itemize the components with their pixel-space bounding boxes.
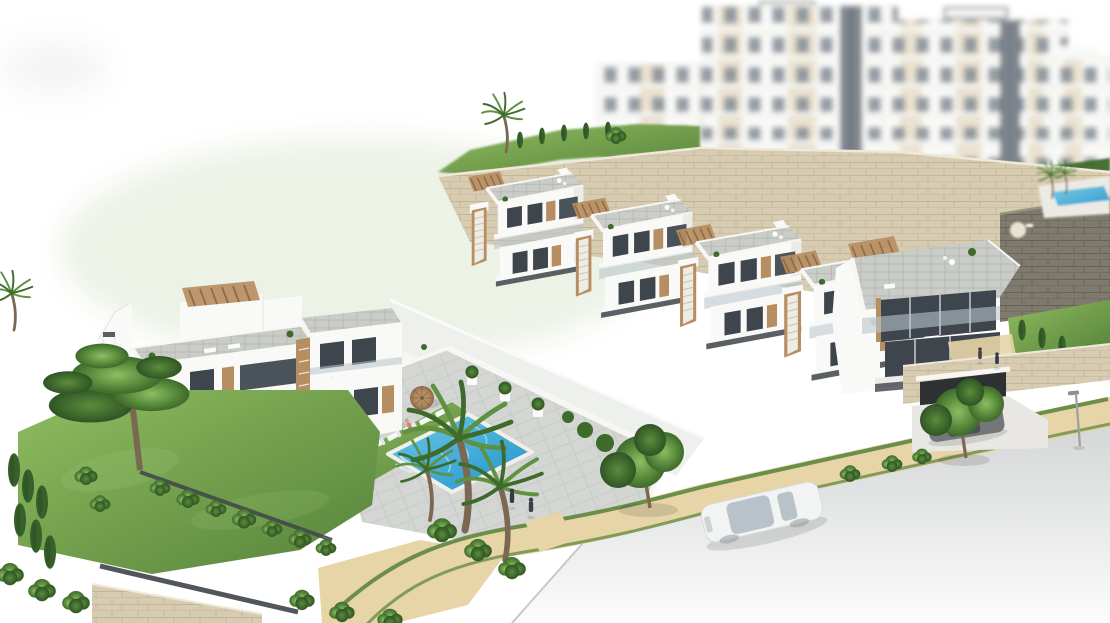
townhouse-unit <box>676 220 801 349</box>
palm-tree <box>0 271 32 330</box>
garden-wall <box>92 584 262 623</box>
architectural-render: Aerial 3D architectural render of a hill… <box>0 0 1110 623</box>
render-canvas: Aerial 3D architectural render of a hill… <box>0 0 1110 623</box>
